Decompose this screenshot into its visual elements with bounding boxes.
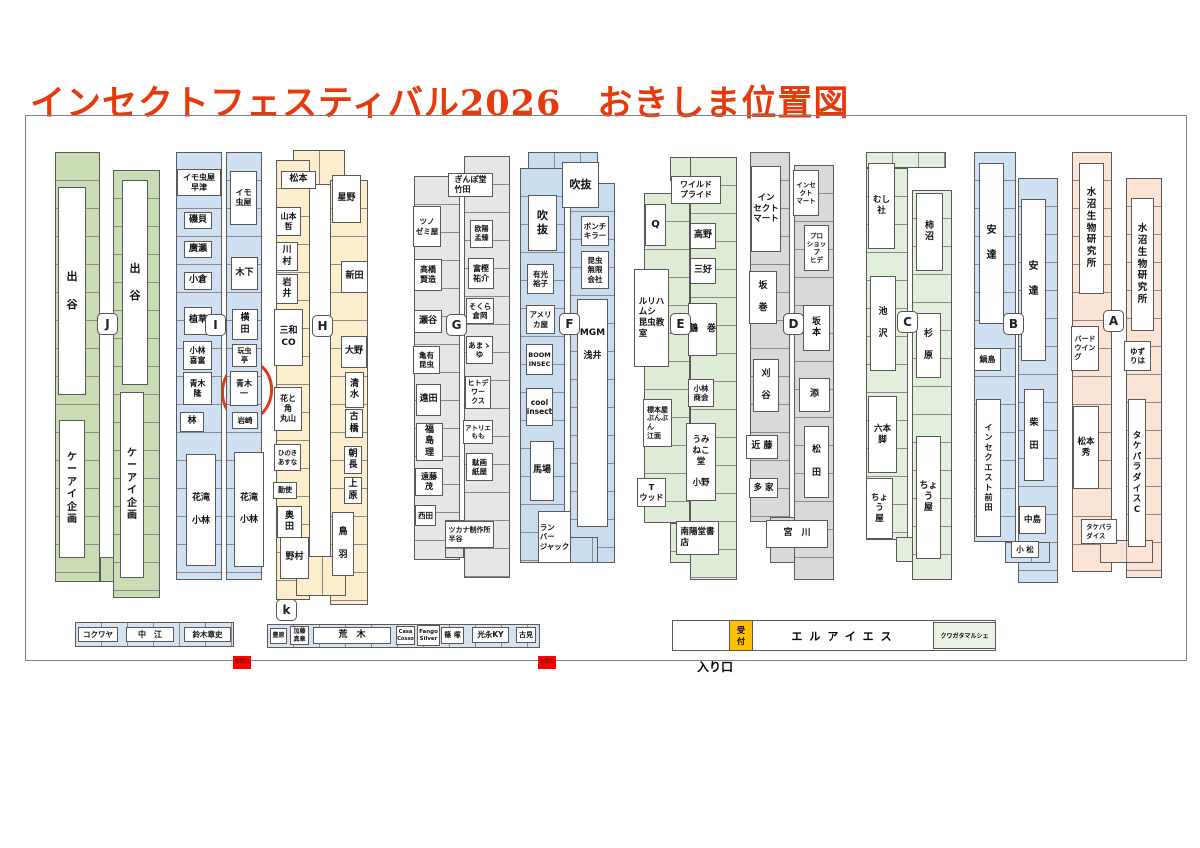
booth-label: コクワヤ bbox=[78, 627, 118, 642]
booth-label: 朝 長 bbox=[344, 446, 362, 474]
block-marker-F: F bbox=[559, 313, 580, 335]
booth-label: ヒトデ ワー クス bbox=[465, 376, 491, 409]
booth-label: 有光 裕子 bbox=[527, 264, 554, 294]
booth-label: 岩 井 bbox=[276, 274, 298, 304]
booth-label: 欧陽 孟臻 bbox=[470, 220, 493, 248]
booth-label: 宮 川 bbox=[766, 520, 828, 548]
emergency-exit-badge: 非常口 bbox=[538, 656, 556, 669]
booth-label: 横 田 bbox=[232, 309, 258, 340]
booth-label: 三和 CO bbox=[274, 309, 303, 366]
booth-label: ぎんぽ堂 竹田 bbox=[448, 173, 493, 197]
booth-label: 小倉 bbox=[184, 272, 212, 290]
booth-label: 林 bbox=[180, 412, 204, 432]
booth-label: 大野 bbox=[341, 336, 367, 368]
booth-label: 荒 木 bbox=[313, 627, 391, 644]
booth-label: 出 谷 bbox=[122, 180, 148, 385]
booth-label: 上 原 bbox=[344, 477, 362, 504]
booth-label: 岩崎 bbox=[232, 412, 258, 429]
booth-label: 廣瀬 bbox=[184, 241, 212, 258]
booth-label: 青木 一 bbox=[230, 371, 258, 406]
booth-label: アトリエ もも bbox=[463, 420, 493, 444]
booth-label: 坂 巻 bbox=[749, 271, 777, 324]
booth-label: ひのき あすな bbox=[274, 444, 301, 471]
booth-label: 青木 隆 bbox=[183, 372, 212, 405]
booth-label: 刈 谷 bbox=[753, 359, 779, 412]
floor-map: インセクトフェスティバル2026 おきしま位置図 受 付 エルアイエス クワガタ… bbox=[0, 0, 1200, 848]
booth-label: 花滝 小林 bbox=[186, 454, 216, 566]
booth-label: タ ケ パ ラ ダ イ ス C bbox=[1128, 399, 1146, 547]
booth-label: 近 藤 bbox=[746, 435, 778, 459]
booth-label: 杉 原 bbox=[916, 313, 941, 378]
booth-label: アメリ カ屋 bbox=[526, 305, 555, 334]
booth-label: 南陽堂書 店 bbox=[676, 521, 719, 555]
booth-label: ちょ う 屋 bbox=[866, 478, 893, 539]
booth-label: 光永KY bbox=[472, 627, 509, 643]
booth-label: 豊原 bbox=[270, 628, 287, 644]
block-marker-E: E bbox=[670, 313, 691, 335]
booth-label: 高橋 賢造 bbox=[414, 259, 442, 291]
booth-label: 中島 bbox=[1019, 506, 1046, 534]
booth-label: 小林 商会 bbox=[688, 379, 714, 407]
booth-label: 昆虫 無限 会社 bbox=[581, 251, 609, 289]
booth-label: 鶴 巻 bbox=[688, 303, 717, 356]
reception-desk: 受 付 bbox=[729, 620, 753, 651]
block-marker-D: D bbox=[783, 313, 804, 335]
entrance-label: 入り口 bbox=[697, 658, 733, 675]
booth-label: 標本屋 ぶんぶ ん 江面 bbox=[643, 399, 672, 447]
booth-label: 吹抜 bbox=[562, 162, 599, 208]
booth-label: 古 橋 bbox=[345, 409, 363, 438]
booth-label: Fango Silver bbox=[417, 625, 440, 646]
booth-label: 松 田 bbox=[804, 426, 829, 498]
booth-label: イン セクト マート bbox=[751, 166, 781, 252]
booth-label: 亀有 昆虫 bbox=[413, 346, 440, 374]
booth-label: 瀬谷 bbox=[414, 310, 442, 333]
booth-label: Q bbox=[645, 204, 666, 246]
block-marker-I: I bbox=[205, 314, 226, 336]
booth-label: 勤使 bbox=[273, 482, 297, 499]
booth-strip bbox=[100, 557, 114, 582]
booth-label: 清 水 bbox=[345, 372, 364, 408]
booth-strip bbox=[896, 537, 913, 562]
block-marker-G: G bbox=[446, 314, 467, 336]
booth-label: 福 島 理 bbox=[416, 423, 443, 461]
block-marker-A: A bbox=[1103, 310, 1124, 332]
booth-label: 鍋島 bbox=[974, 348, 1001, 371]
booth-label: うみ ねこ 堂 小野 bbox=[686, 423, 716, 501]
booth-label: インセ クト マート bbox=[793, 170, 819, 216]
booth-label: 遠田 bbox=[416, 384, 441, 416]
booth-label: 多 家 bbox=[749, 478, 778, 498]
booth-label: 奥 田 bbox=[277, 506, 302, 538]
booth-label: ワイルド プライド bbox=[671, 176, 721, 204]
booth-label: 坂 本 bbox=[803, 305, 830, 351]
booth-label: 添 bbox=[799, 378, 830, 412]
booth-label: ゆず りは bbox=[1124, 341, 1151, 371]
booth-label: 鳥 羽 bbox=[332, 512, 354, 576]
booth-label: 六本 脚 bbox=[868, 396, 897, 473]
block-marker-B: B bbox=[1003, 313, 1024, 335]
booth-label: ルリハ ムシ 昆虫教 室 bbox=[634, 269, 669, 367]
booth-label: 西田 bbox=[415, 505, 436, 526]
booth-label: 中 江 bbox=[126, 627, 174, 642]
booth-label: 篠 塚 bbox=[441, 627, 464, 644]
booth-label: 山本 哲 bbox=[276, 207, 301, 236]
booth-label: 馬場 bbox=[530, 441, 554, 501]
booth-label: cool insect bbox=[526, 388, 553, 426]
booth-label: 安 達 bbox=[1021, 199, 1046, 361]
booth-label: 出 谷 bbox=[58, 187, 86, 395]
block-marker-k: k bbox=[276, 599, 297, 621]
booth-label: 花と 角 丸山 bbox=[274, 387, 302, 431]
booth-label: イモ 虫屋 bbox=[230, 171, 257, 225]
booth-strip bbox=[690, 157, 737, 580]
block-marker-H: H bbox=[312, 315, 333, 337]
booth-label: 磯貝 bbox=[184, 212, 212, 229]
booth-label: 池 沢 bbox=[870, 276, 896, 371]
booth-label: タケパラ ダイス bbox=[1081, 519, 1117, 544]
booth-label: 吹 抜 bbox=[528, 195, 557, 251]
booth-label: 富樫 祐介 bbox=[468, 258, 494, 289]
booth-label: MGM 浅井 bbox=[577, 299, 608, 527]
booth-label: ポンチ キラー bbox=[581, 216, 609, 246]
booth-label: 新田 bbox=[341, 261, 368, 293]
booth-label: イモ虫屋 早津 bbox=[177, 169, 221, 196]
booth-label: BOOM INSEC bbox=[526, 344, 553, 375]
booth-label: ケ ー ア イ 企 画 bbox=[59, 420, 85, 558]
booth-label: そくら 倉岡 bbox=[466, 298, 494, 324]
booth-label: 花滝 小林 bbox=[234, 452, 264, 567]
booth-label: 木下 bbox=[231, 257, 258, 290]
booth-label: 野村 bbox=[280, 537, 309, 579]
booth-label: イ ン セ ク エ ス ト 前 田 bbox=[976, 399, 1001, 537]
booth-label: バード ウイン グ bbox=[1071, 326, 1099, 371]
booth-label: 水 沼 生 物 研 究 所 bbox=[1131, 198, 1154, 331]
booth-label: 松本 秀 bbox=[1073, 406, 1099, 489]
emergency-exit-badge: 非常口 bbox=[233, 656, 251, 669]
booth-label: あまゝ ゆ bbox=[466, 336, 493, 364]
booth-label: 加藤 真章 bbox=[290, 626, 309, 645]
booth-label: 小 松 bbox=[1011, 541, 1039, 558]
booth-label: 駄画 紙屋 bbox=[466, 453, 493, 481]
booth-label: 柴 田 bbox=[1024, 389, 1044, 481]
booth-label: T ウッド bbox=[637, 478, 666, 507]
booth-label: 鈴木章史 bbox=[184, 627, 231, 642]
booth-label: 柿 沼 bbox=[916, 193, 943, 271]
booth-label: ちょ う 屋 bbox=[916, 436, 941, 559]
booth-label: 三好 bbox=[690, 258, 716, 284]
booth-label: プロ ショッ プ ヒデ bbox=[804, 225, 829, 271]
booth-label: 星野 bbox=[332, 175, 361, 223]
booth-label: 遠藤 茂 bbox=[415, 468, 443, 496]
company-banner: エルアイエス bbox=[760, 620, 930, 651]
booth-label: 古見 bbox=[516, 627, 536, 643]
booth-label: ツカナ制作所 半谷 bbox=[445, 521, 494, 548]
booth-label: Casa Cosso bbox=[396, 626, 415, 645]
booth-label: 小林 喜富 bbox=[183, 341, 212, 370]
booth-label: 玩虫 亭 bbox=[232, 344, 257, 367]
booth-label: ラン バー ジャック bbox=[538, 511, 571, 563]
booth-label: 松本 bbox=[281, 171, 316, 189]
kuwagata-marche-booth: クワガタマルシェ bbox=[933, 622, 996, 649]
booth-label: 水 沼 生 物 研 究 所 bbox=[1079, 163, 1104, 294]
booth-label: 高野 bbox=[690, 223, 716, 249]
block-marker-C: C bbox=[897, 311, 918, 333]
booth-label: 安 達 bbox=[979, 163, 1004, 324]
booth-label: ツノ ゼミ屋 bbox=[413, 206, 441, 247]
block-marker-J: J bbox=[97, 313, 118, 335]
booth-label: むし 社 bbox=[868, 163, 895, 249]
booth-label: 川 村 bbox=[276, 242, 298, 271]
booth-label: ケ ー ア イ 企 画 bbox=[120, 392, 144, 578]
